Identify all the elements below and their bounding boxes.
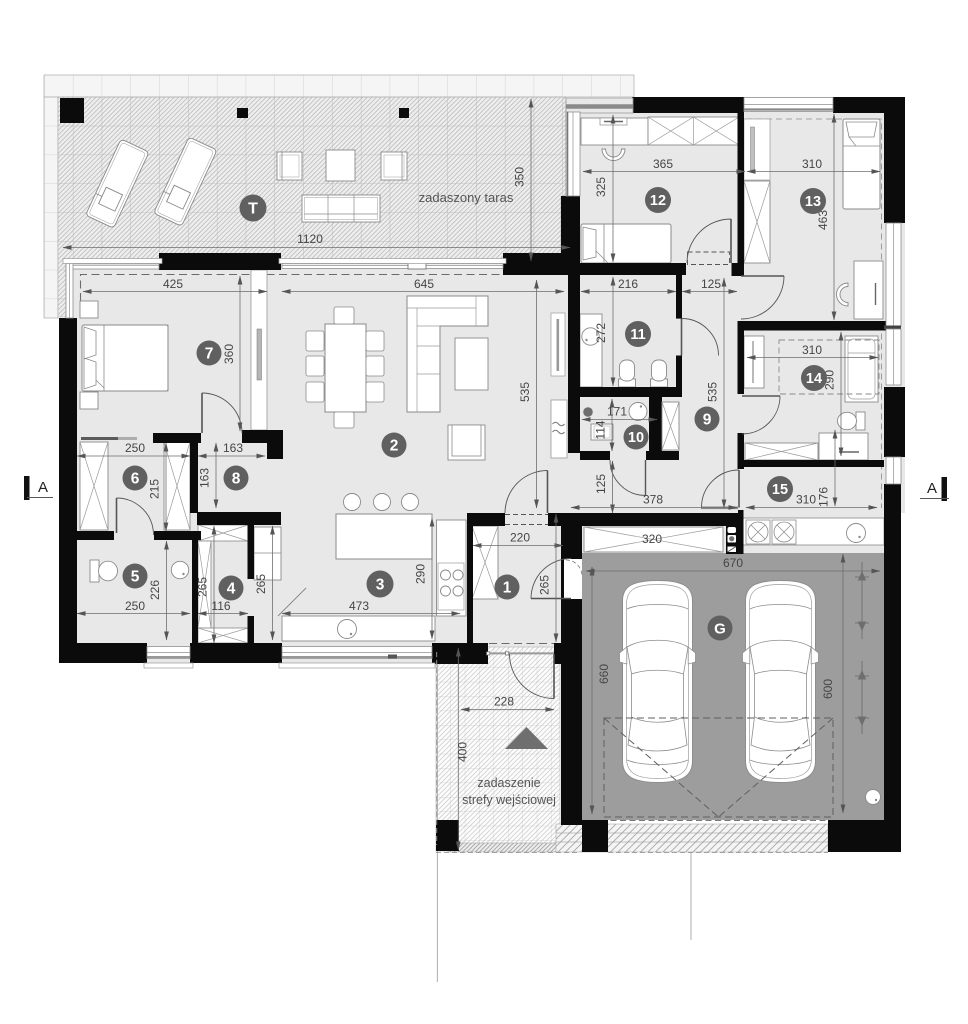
svg-text:216: 216 <box>618 277 638 291</box>
svg-text:5: 5 <box>131 569 140 586</box>
svg-text:645: 645 <box>414 277 434 291</box>
svg-text:116: 116 <box>211 599 230 613</box>
svg-text:535: 535 <box>518 382 532 402</box>
svg-text:378: 378 <box>643 493 663 507</box>
svg-text:320: 320 <box>642 532 662 546</box>
svg-text:8: 8 <box>232 471 241 488</box>
svg-text:265: 265 <box>196 577 210 597</box>
svg-text:265: 265 <box>254 574 268 594</box>
svg-text:3: 3 <box>376 577 385 594</box>
svg-text:7: 7 <box>205 346 214 363</box>
svg-text:A: A <box>927 480 937 497</box>
svg-text:163: 163 <box>198 468 212 488</box>
svg-text:220: 220 <box>510 531 530 545</box>
svg-text:zadaszenie: zadaszenie <box>477 776 540 790</box>
svg-text:228: 228 <box>494 695 514 709</box>
svg-text:660: 660 <box>597 664 611 684</box>
svg-text:272: 272 <box>594 323 608 343</box>
svg-text:226: 226 <box>148 580 162 600</box>
svg-text:535: 535 <box>706 382 720 402</box>
svg-text:14: 14 <box>806 371 822 387</box>
svg-text:6: 6 <box>131 471 140 488</box>
svg-text:670: 670 <box>723 556 743 570</box>
svg-text:12: 12 <box>650 193 666 209</box>
svg-text:176: 176 <box>817 487 831 507</box>
svg-text:strefy wejściowej: strefy wejściowej <box>462 793 556 807</box>
svg-text:13: 13 <box>805 194 821 210</box>
svg-text:400: 400 <box>456 742 470 762</box>
svg-text:325: 325 <box>594 177 608 197</box>
svg-text:G: G <box>714 621 726 638</box>
svg-text:310: 310 <box>802 343 822 357</box>
svg-text:350: 350 <box>513 167 527 187</box>
svg-text:1120: 1120 <box>297 232 323 246</box>
svg-text:171: 171 <box>607 405 627 419</box>
svg-text:250: 250 <box>125 599 145 613</box>
svg-text:250: 250 <box>125 441 145 455</box>
svg-text:310: 310 <box>802 157 822 171</box>
svg-text:T: T <box>248 201 258 218</box>
svg-text:2: 2 <box>390 438 399 455</box>
svg-text:360: 360 <box>222 344 236 364</box>
svg-text:425: 425 <box>163 277 183 291</box>
svg-text:163: 163 <box>223 441 243 455</box>
svg-text:10: 10 <box>628 430 644 446</box>
svg-text:125: 125 <box>701 277 721 291</box>
svg-text:473: 473 <box>349 599 369 613</box>
svg-text:A: A <box>38 479 48 496</box>
svg-text:15: 15 <box>772 482 788 498</box>
svg-text:1: 1 <box>503 580 512 597</box>
svg-text:zadaszony taras: zadaszony taras <box>419 190 514 205</box>
svg-text:600: 600 <box>821 679 835 699</box>
svg-text:290: 290 <box>414 564 428 584</box>
svg-text:310: 310 <box>796 493 816 507</box>
svg-text:11: 11 <box>630 327 645 343</box>
svg-text:215: 215 <box>148 479 162 499</box>
svg-text:4: 4 <box>227 581 236 598</box>
svg-text:125: 125 <box>594 474 608 494</box>
svg-text:365: 365 <box>653 157 673 171</box>
svg-text:265: 265 <box>538 575 552 595</box>
svg-text:9: 9 <box>703 412 712 429</box>
svg-text:114: 114 <box>594 420 608 439</box>
